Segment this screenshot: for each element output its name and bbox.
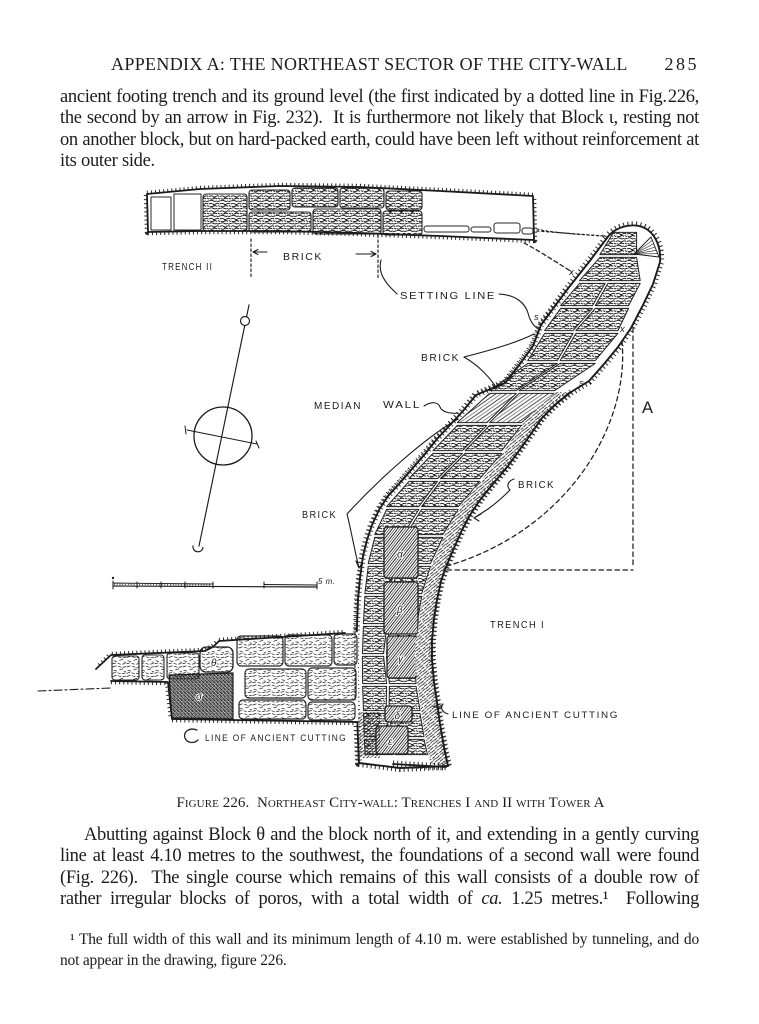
svg-text:σ: σ (196, 692, 203, 703)
svg-text:s: s (579, 378, 584, 389)
svg-text:δ: δ (395, 711, 401, 722)
svg-text:BRICK: BRICK (518, 480, 555, 491)
svg-text:SETTING LINE: SETTING LINE (400, 291, 496, 302)
svg-text:TRENCH I: TRENCH I (490, 620, 545, 631)
svg-text:WALL: WALL (383, 400, 421, 411)
svg-text:θ: θ (211, 658, 217, 669)
svg-text:TRENCH II: TRENCH II (162, 262, 213, 273)
svg-text:LINE OF ANCIENT CUTTING: LINE OF ANCIENT CUTTING (452, 710, 619, 720)
svg-text:BRICK: BRICK (302, 510, 337, 521)
svg-text:α: α (397, 550, 403, 561)
svg-text:s: s (534, 312, 539, 323)
svg-text:MEDIAN: MEDIAN (314, 401, 362, 412)
svg-text:A: A (642, 399, 653, 417)
svg-text:ε: ε (388, 737, 393, 748)
svg-text:5 m.: 5 m. (318, 577, 336, 586)
svg-text:BRICK: BRICK (283, 252, 323, 263)
svg-text:BRICK: BRICK (421, 353, 460, 364)
svg-text:β: β (396, 605, 403, 616)
svg-text:LINE OF ANCIENT CUTTING: LINE OF ANCIENT CUTTING (205, 733, 347, 743)
